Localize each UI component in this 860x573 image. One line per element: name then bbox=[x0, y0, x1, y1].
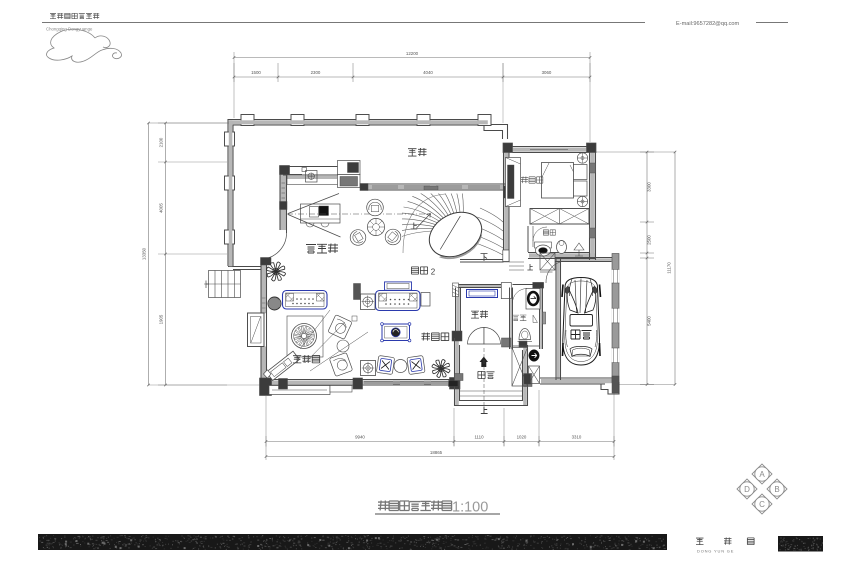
svg-text:B: B bbox=[774, 485, 779, 494]
svg-text:11170: 11170 bbox=[667, 262, 672, 274]
svg-text:A: A bbox=[759, 470, 765, 479]
svg-text:1020: 1020 bbox=[517, 435, 527, 440]
svg-text:E-mail:9657282@qq.com: E-mail:9657282@qq.com bbox=[676, 21, 740, 27]
svg-text:2300: 2300 bbox=[311, 70, 321, 75]
svg-text:5400: 5400 bbox=[647, 316, 652, 326]
svg-text:2: 2 bbox=[431, 268, 436, 277]
svg-text:4040: 4040 bbox=[423, 70, 433, 75]
svg-text:C: C bbox=[759, 500, 765, 509]
svg-text:3060: 3060 bbox=[542, 70, 552, 75]
svg-text:9940: 9940 bbox=[355, 435, 365, 440]
svg-text:D: D bbox=[744, 485, 750, 494]
svg-text:2500: 2500 bbox=[647, 235, 652, 245]
svg-text:3300: 3300 bbox=[647, 182, 652, 192]
svg-text:12200: 12200 bbox=[406, 51, 419, 56]
svg-text:18865: 18865 bbox=[430, 450, 443, 455]
svg-text:4005: 4005 bbox=[159, 203, 164, 213]
svg-text:2100: 2100 bbox=[159, 137, 164, 147]
svg-text:1500: 1500 bbox=[251, 70, 261, 75]
svg-text:DONG YUN GE: DONG YUN GE bbox=[697, 549, 734, 554]
svg-text:3310: 3310 bbox=[572, 435, 582, 440]
svg-text:1905: 1905 bbox=[159, 314, 164, 324]
svg-text:1110: 1110 bbox=[474, 435, 484, 440]
svg-text:13350: 13350 bbox=[142, 247, 147, 260]
